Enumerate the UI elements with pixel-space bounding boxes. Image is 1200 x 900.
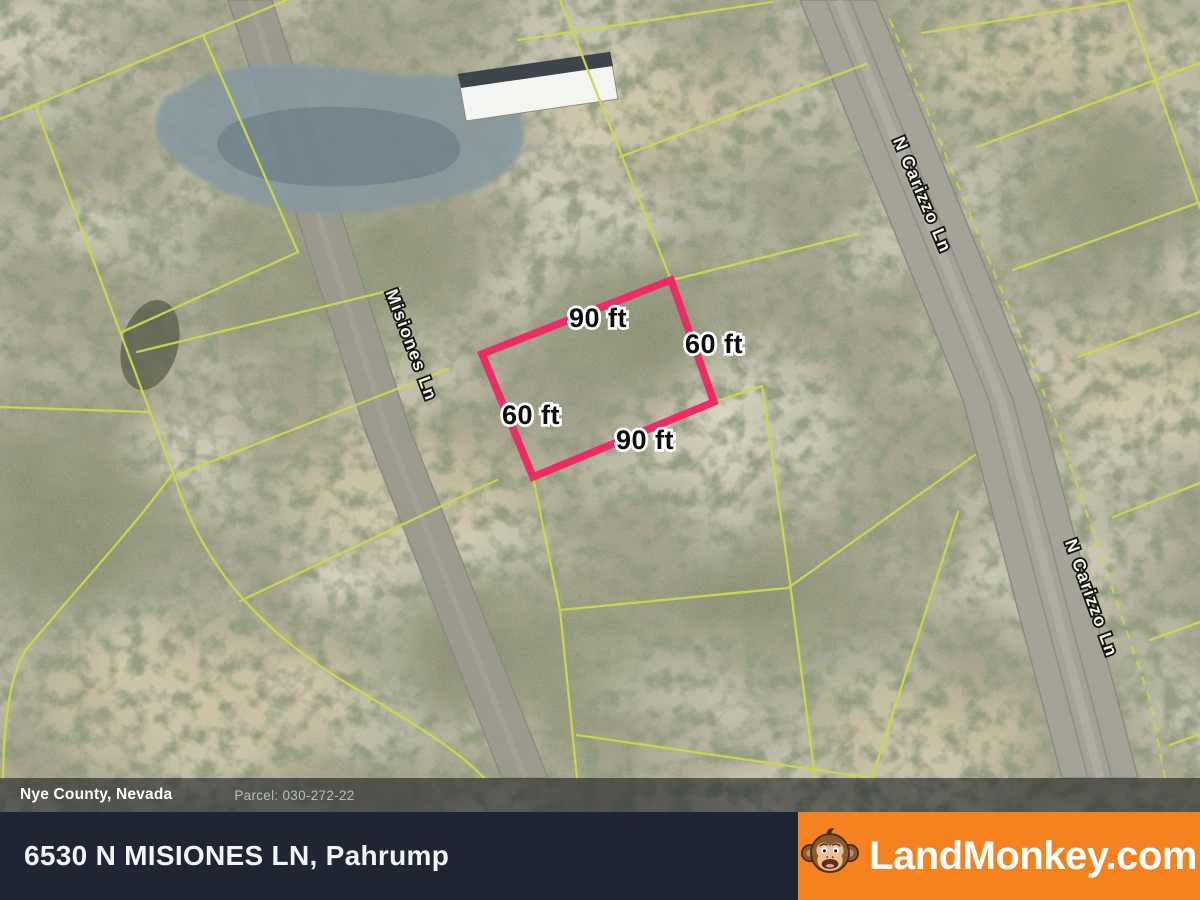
parcel-number: Parcel: 030-272-22 [234,788,354,803]
landmonkey-brand-link[interactable]: LandMonkey.com [798,812,1200,900]
footer-bar: 6530 N MISIONES LN, Pahrump [0,812,1200,900]
listing-map-card: 90 ft 60 ft 60 ft 90 ft Misiones Ln N Ca… [0,0,1200,900]
dim-label-left: 60 ft [502,400,560,430]
monkey-face-icon [801,825,859,888]
dim-label-bottom: 90 ft [616,425,674,455]
aerial-map-canvas: 90 ft 60 ft 60 ft 90 ft Misiones Ln N Ca… [0,0,1200,812]
aerial-map: 90 ft 60 ft 60 ft 90 ft Misiones Ln N Ca… [0,0,1200,812]
brand-wordmark: LandMonkey.com [869,834,1197,879]
dim-label-top: 90 ft [569,303,627,333]
county-info-bar: Nye County, Nevada Parcel: 030-272-22 [0,778,1200,812]
property-address: 6530 N MISIONES LN, Pahrump [0,812,798,900]
dim-label-right: 60 ft [685,329,743,359]
county-name: Nye County, Nevada [20,786,172,804]
